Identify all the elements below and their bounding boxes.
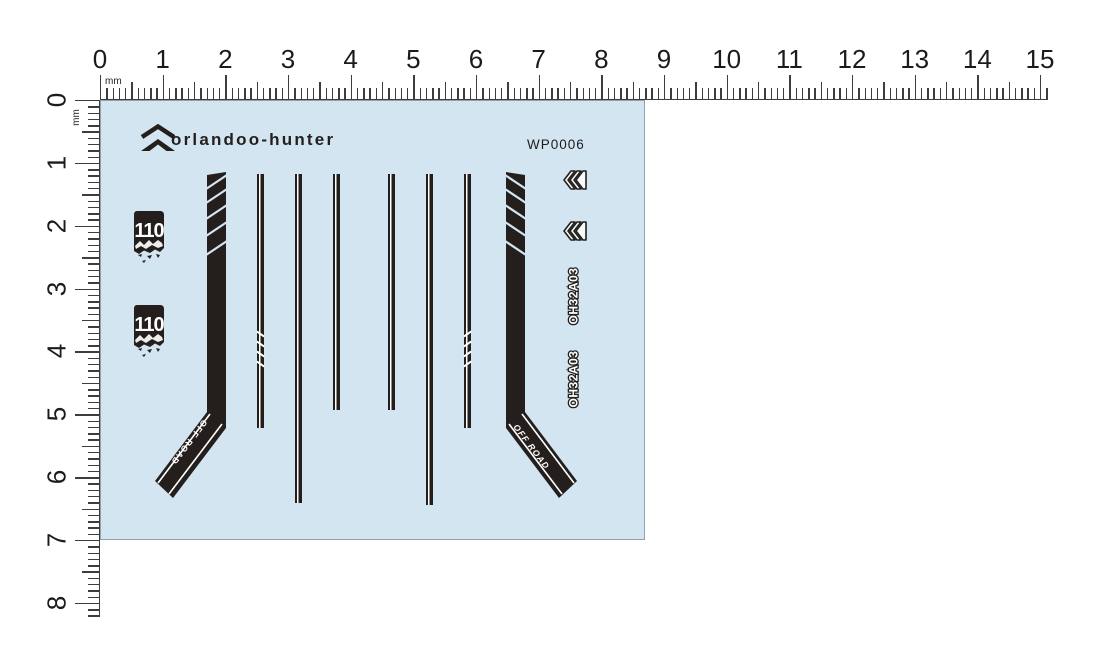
- ruler-tick: [990, 88, 991, 100]
- ruler-tick: [514, 88, 515, 100]
- ruler-tick: [545, 88, 546, 100]
- ruler-tick: [564, 88, 565, 100]
- ruler-tick: [88, 175, 100, 176]
- ruler-tick: [282, 88, 283, 100]
- ruler-tick: [88, 465, 100, 466]
- ruler-tick: [75, 226, 100, 227]
- ruler-tick: [88, 389, 100, 390]
- pinstripe-decal: [333, 174, 340, 410]
- ruler-tick: [88, 282, 100, 283]
- ruler-tick: [88, 615, 100, 616]
- ruler-tick: [88, 427, 100, 428]
- pinstripe-decal: [388, 174, 395, 410]
- ruler-tick: [1034, 88, 1035, 100]
- ruler-tick: [858, 88, 859, 100]
- ruler-tick: [88, 609, 100, 610]
- ruler-tick: [88, 295, 100, 296]
- brand-name: orlandoo-hunter: [171, 130, 335, 150]
- ruler-tick: [225, 75, 226, 100]
- ruler-tick: [846, 88, 847, 100]
- side-stripe-left-decal: OFF ROAD: [140, 165, 240, 510]
- ruler-tick: [169, 88, 170, 100]
- ruler-tick: [75, 540, 100, 541]
- ruler-number: 5: [406, 44, 420, 75]
- ruler-tick: [351, 75, 352, 100]
- ruler-tick: [100, 75, 101, 100]
- ruler-tick: [946, 82, 947, 100]
- ruler-tick: [965, 88, 966, 100]
- ruler-tick: [88, 521, 100, 522]
- ruler-tick: [557, 88, 558, 100]
- ruler-tick: [407, 88, 408, 100]
- ruler-tick: [852, 75, 853, 100]
- ruler-tick: [307, 88, 308, 100]
- ruler-tick: [783, 88, 784, 100]
- ruler-tick: [526, 88, 527, 100]
- ruler-tick: [319, 82, 320, 100]
- ruler-tick: [1021, 88, 1022, 100]
- ruler-number: 3: [281, 44, 295, 75]
- ruler-tick: [395, 88, 396, 100]
- ruler-tick: [777, 88, 778, 100]
- ruler-tick: [501, 88, 502, 100]
- ruler-tick: [1027, 88, 1028, 100]
- model-code-text: OH32A03: [567, 351, 581, 408]
- ruler-tick: [614, 88, 615, 100]
- ruler-tick: [601, 75, 602, 100]
- ruler-tick: [88, 150, 100, 151]
- ruler-tick: [213, 88, 214, 100]
- ruler-tick: [75, 100, 100, 101]
- model-code-text: OH32A03: [567, 268, 581, 325]
- ruler-tick: [88, 251, 100, 252]
- ruler-tick: [188, 88, 189, 100]
- ruler-tick: [88, 144, 100, 145]
- ruler-tick: [88, 565, 100, 566]
- ruler-tick: [88, 439, 100, 440]
- ruler-tick: [88, 527, 100, 528]
- ruler-tick: [959, 88, 960, 100]
- ruler-number: 0: [93, 44, 107, 75]
- ruler-tick: [82, 194, 100, 195]
- ruler-tick: [75, 603, 100, 604]
- ruler-tick: [451, 88, 452, 100]
- product-code: WP0006: [527, 137, 585, 152]
- ruler-tick: [908, 88, 909, 100]
- ruler-tick: [1046, 88, 1047, 100]
- ruler-tick: [745, 88, 746, 100]
- ruler-number: 13: [900, 44, 929, 75]
- ruler-tick: [532, 88, 533, 100]
- ruler-tick: [595, 88, 596, 100]
- ruler-tick: [88, 502, 100, 503]
- ruler-tick: [88, 395, 100, 396]
- ruler-tick: [476, 75, 477, 100]
- ruler-tick: [952, 88, 953, 100]
- ruler-tick: [996, 88, 997, 100]
- ruler-tick: [88, 213, 100, 214]
- ruler-tick: [88, 546, 100, 547]
- model-code-decal: OH32A03: [565, 349, 581, 409]
- ruler-tick: [88, 433, 100, 434]
- ruler-tick: [88, 113, 100, 114]
- ruler-tick: [752, 88, 753, 100]
- ruler-number: 3: [42, 274, 73, 304]
- ruler-tick: [833, 88, 834, 100]
- ruler-tick: [88, 276, 100, 277]
- pinstripe-decal: [295, 174, 302, 503]
- ruler-tick: [739, 88, 740, 100]
- product-image: 0123456789101112131415 012345678 mm mm o…: [0, 0, 1100, 660]
- ruler-tick: [156, 88, 157, 100]
- ruler-tick: [626, 88, 627, 100]
- ruler-tick: [88, 377, 100, 378]
- ruler-tick: [470, 88, 471, 100]
- pinstripe-decal: [464, 174, 471, 428]
- ruler-number: 0: [42, 85, 73, 115]
- ruler-tick: [88, 238, 100, 239]
- ruler-tick: [871, 88, 872, 100]
- ruler-tick: [363, 88, 364, 100]
- pinstripe-decal: [426, 174, 433, 505]
- ruler-tick: [808, 88, 809, 100]
- ruler-number: 6: [469, 44, 483, 75]
- ruler-tick: [219, 88, 220, 100]
- ruler-tick: [583, 88, 584, 100]
- ruler-tick: [88, 364, 100, 365]
- ruler-tick: [689, 88, 690, 100]
- ruler-tick: [570, 82, 571, 100]
- ruler-tick: [401, 88, 402, 100]
- ruler-tick: [88, 490, 100, 491]
- ruler-tick: [88, 169, 100, 170]
- ruler-tick: [88, 326, 100, 327]
- ruler-tick: [200, 88, 201, 100]
- ruler-tick: [88, 483, 100, 484]
- ruler-tick: [269, 88, 270, 100]
- ruler-tick: [432, 88, 433, 100]
- ruler-tick: [82, 509, 100, 510]
- ruler-tick: [933, 88, 934, 100]
- ruler-tick: [88, 421, 100, 422]
- ruler-tick: [244, 88, 245, 100]
- ruler-tick: [181, 88, 182, 100]
- ruler-tick: [927, 88, 928, 100]
- ruler-tick: [413, 75, 414, 100]
- ruler-tick: [651, 88, 652, 100]
- ruler-tick: [764, 88, 765, 100]
- ruler-tick: [238, 88, 239, 100]
- ruler-tick: [902, 88, 903, 100]
- ruler-tick: [814, 88, 815, 100]
- ruler-tick: [620, 88, 621, 100]
- ruler-tick: [520, 88, 521, 100]
- ruler-tick: [482, 88, 483, 100]
- ruler-tick: [88, 219, 100, 220]
- ruler-number: 6: [42, 462, 73, 492]
- ruler-tick: [645, 88, 646, 100]
- ruler-tick: [88, 597, 100, 598]
- ruler-number: 14: [963, 44, 992, 75]
- ruler-number: 1: [155, 44, 169, 75]
- ruler-tick: [445, 82, 446, 100]
- ruler-tick: [890, 88, 891, 100]
- ruler-tick: [539, 75, 540, 100]
- mm-unit-label-horizontal: mm: [105, 76, 122, 87]
- ruler-tick: [877, 88, 878, 100]
- ruler-tick: [75, 477, 100, 478]
- ruler-tick: [821, 82, 822, 100]
- ruler-tick: [88, 119, 100, 120]
- ruler-tick: [827, 88, 828, 100]
- ruler-tick: [1040, 75, 1041, 100]
- ruler-tick: [75, 289, 100, 290]
- ruler-tick: [88, 408, 100, 409]
- ruler-tick: [257, 82, 258, 100]
- ruler-tick: [971, 88, 972, 100]
- ruler-tick: [88, 263, 100, 264]
- ruler-tick: [670, 88, 671, 100]
- ruler-tick: [883, 82, 884, 100]
- ruler-tick: [88, 452, 100, 453]
- ruler-tick: [438, 88, 439, 100]
- ruler-tick: [88, 584, 100, 585]
- ruler-tick: [921, 88, 922, 100]
- ruler-tick: [865, 88, 866, 100]
- ruler-tick: [144, 88, 145, 100]
- ruler-tick: [426, 88, 427, 100]
- ruler-tick: [507, 82, 508, 100]
- ruler-tick: [977, 75, 978, 100]
- ruler-tick: [839, 88, 840, 100]
- ruler-tick: [88, 496, 100, 497]
- ruler-tick: [457, 88, 458, 100]
- ruler-number: 2: [42, 211, 73, 241]
- ruler-tick: [664, 75, 665, 100]
- ruler-tick: [88, 188, 100, 189]
- ruler-number: 11: [776, 44, 803, 75]
- ruler-tick: [88, 182, 100, 183]
- ruler-tick: [88, 458, 100, 459]
- ruler-tick: [495, 88, 496, 100]
- ruler-tick: [1009, 82, 1010, 100]
- ruler-tick: [194, 82, 195, 100]
- ruler-tick: [131, 82, 132, 100]
- ruler-tick: [720, 88, 721, 100]
- ruler-tick: [639, 88, 640, 100]
- ruler-tick: [940, 88, 941, 100]
- ruler-tick: [463, 88, 464, 100]
- ruler-number: 4: [343, 44, 357, 75]
- ruler-tick: [288, 75, 289, 100]
- ruler-tick: [88, 301, 100, 302]
- ruler-tick: [250, 88, 251, 100]
- ruler-tick: [683, 88, 684, 100]
- ruler-tick: [758, 82, 759, 100]
- ruler-tick: [88, 270, 100, 271]
- ruler-tick: [984, 88, 985, 100]
- chevron-mark-icon: [561, 170, 587, 190]
- ruler-tick: [88, 559, 100, 560]
- ruler-tick: [301, 88, 302, 100]
- ruler-tick: [420, 88, 421, 100]
- ruler-tick: [163, 75, 164, 100]
- ruler-tick: [702, 88, 703, 100]
- ruler-tick: [175, 88, 176, 100]
- ruler-number: 10: [712, 44, 741, 75]
- ruler-number: 8: [42, 588, 73, 618]
- ruler-tick: [88, 232, 100, 233]
- ruler-tick: [88, 553, 100, 554]
- ruler-tick: [796, 88, 797, 100]
- ruler-tick: [915, 75, 916, 100]
- ruler-tick: [82, 257, 100, 258]
- ruler-tick: [313, 88, 314, 100]
- ruler-tick: [338, 88, 339, 100]
- ruler-tick: [1015, 88, 1016, 100]
- ruler-tick: [88, 125, 100, 126]
- ruler-tick: [727, 75, 728, 100]
- ruler-tick: [369, 88, 370, 100]
- ruler-tick: [489, 88, 490, 100]
- ruler-tick: [75, 414, 100, 415]
- ruler-tick: [388, 88, 389, 100]
- ruler-tick: [82, 383, 100, 384]
- ruler-tick: [332, 88, 333, 100]
- ruler-tick: [82, 320, 100, 321]
- ruler-tick: [82, 131, 100, 132]
- ruler-tick: [88, 534, 100, 535]
- ruler-tick: [88, 307, 100, 308]
- ruler-tick: [733, 88, 734, 100]
- ruler-tick: [88, 138, 100, 139]
- ruler-tick: [802, 88, 803, 100]
- ruler-tick: [1002, 88, 1003, 100]
- ruler-tick: [88, 333, 100, 334]
- ruler-tick: [232, 88, 233, 100]
- mm-unit-label-vertical: mm: [71, 109, 82, 126]
- ruler-tick: [119, 88, 120, 100]
- ruler-tick: [138, 88, 139, 100]
- ruler-tick: [125, 88, 126, 100]
- ruler-tick: [88, 590, 100, 591]
- ruler-tick: [88, 207, 100, 208]
- ruler-tick: [789, 75, 790, 100]
- ruler-tick: [376, 88, 377, 100]
- ruler-number: 9: [657, 44, 671, 75]
- ruler-tick: [633, 82, 634, 100]
- ruler-tick: [708, 88, 709, 100]
- ruler-number: 1: [42, 148, 73, 178]
- ruler-tick: [75, 351, 100, 352]
- ruler-tick: [695, 82, 696, 100]
- side-stripe-right-decal: OFF ROAD: [486, 165, 586, 510]
- ruler-tick: [275, 88, 276, 100]
- ruler-tick: [75, 163, 100, 164]
- ruler-tick: [551, 88, 552, 100]
- ruler-number: 8: [594, 44, 608, 75]
- ruler-number: 7: [531, 44, 545, 75]
- ruler-number: 7: [42, 525, 73, 555]
- ruler-tick: [326, 88, 327, 100]
- ruler-tick: [88, 339, 100, 340]
- ruler-tick: [294, 88, 295, 100]
- ruler-number: 15: [1026, 44, 1055, 75]
- ruler-tick: [608, 88, 609, 100]
- ruler-tick: [357, 88, 358, 100]
- ruler-number: 12: [838, 44, 867, 75]
- ruler-tick: [896, 88, 897, 100]
- ruler-tick: [589, 88, 590, 100]
- chevron-mark-icon: [561, 221, 587, 241]
- ruler-tick: [576, 88, 577, 100]
- ruler-tick: [88, 370, 100, 371]
- model-code-decal: OH32A03: [565, 266, 581, 326]
- ruler-tick: [82, 446, 100, 447]
- ruler-tick: [714, 88, 715, 100]
- ruler-tick: [344, 88, 345, 100]
- pinstripe-decal: [257, 174, 264, 428]
- ruler-tick: [88, 314, 100, 315]
- ruler-tick: [677, 88, 678, 100]
- ruler-tick: [382, 82, 383, 100]
- ruler-tick: [88, 106, 100, 107]
- ruler-tick: [207, 88, 208, 100]
- ruler-tick: [88, 471, 100, 472]
- ruler-tick: [88, 157, 100, 158]
- ruler-tick: [113, 88, 114, 100]
- ruler-tick: [88, 201, 100, 202]
- ruler-tick: [106, 88, 107, 100]
- ruler-tick: [771, 88, 772, 100]
- ruler-number: 4: [42, 336, 73, 366]
- ruler-tick: [88, 578, 100, 579]
- ruler-tick: [82, 571, 100, 572]
- ruler-tick: [88, 245, 100, 246]
- ruler-tick: [88, 345, 100, 346]
- ruler-tick: [658, 88, 659, 100]
- ruler-number: 2: [218, 44, 232, 75]
- ruler-tick: [263, 88, 264, 100]
- ruler-tick: [88, 358, 100, 359]
- ruler-number: 5: [42, 399, 73, 429]
- ruler-tick: [150, 88, 151, 100]
- ruler-tick: [88, 515, 100, 516]
- ruler-tick: [88, 402, 100, 403]
